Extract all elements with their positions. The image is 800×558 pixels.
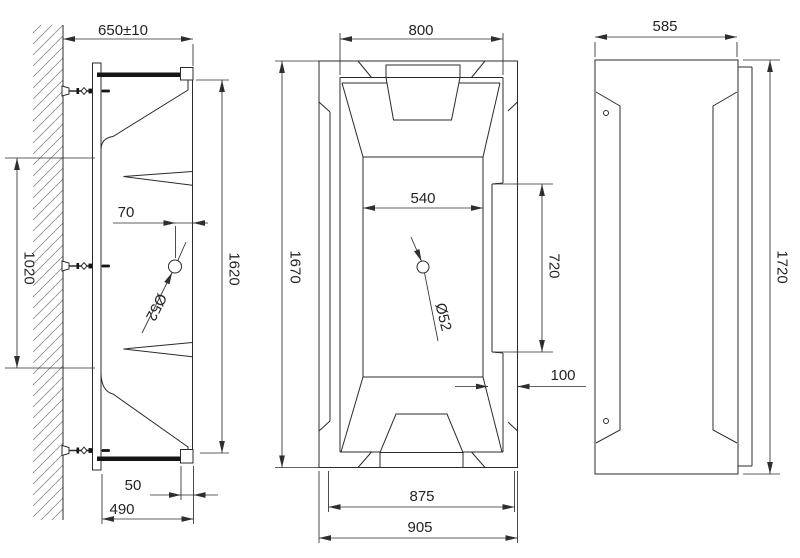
wall-fastener-bottom [62, 446, 110, 456]
dim-650-label: 650±10 [98, 22, 148, 39]
dim-1620: 1620 [196, 80, 243, 453]
foot-step-pad [380, 453, 463, 468]
headrest-pad [386, 65, 460, 78]
tub-inner-profile-top [101, 81, 188, 151]
side-section-view: 650±10 1020 70 Ø52 1620 [5, 22, 243, 524]
drawing-sheet: 650±10 1020 70 Ø52 1620 [0, 0, 800, 558]
end-view: 585 1720 [595, 18, 791, 474]
dim-875-label: 875 [409, 488, 434, 505]
dim-100-label: 100 [550, 367, 575, 384]
mounting-hole-bottom [604, 419, 609, 424]
headrest-slope [386, 78, 460, 121]
dim-540-label: 540 [410, 190, 435, 207]
tub-back-flange [93, 63, 102, 470]
plan-view: 800 1670 540 Ø52 720 100 [275, 22, 586, 543]
tub-bottom-bar [97, 457, 181, 462]
drain-hole-plan [417, 261, 429, 273]
dim-905-label: 905 [407, 519, 432, 536]
drain-diameter-side-label: Ø52 [142, 291, 170, 324]
dim-1720: 1720 [743, 60, 791, 474]
drain-hole-side [169, 260, 182, 273]
dim-585-label: 585 [652, 18, 677, 35]
dim-650: 650±10 [63, 22, 193, 66]
leader-drain-side: Ø52 [142, 242, 186, 333]
dim-1020-label: 1020 [21, 251, 38, 284]
dim-50: 50 [125, 466, 218, 524]
wall-fastener-top [62, 86, 110, 96]
tub-rim-end-block [181, 68, 194, 81]
dim-720-label: 720 [546, 253, 563, 278]
apron-panel-outline [595, 60, 738, 474]
dim-1720-label: 1720 [774, 250, 791, 283]
dim-490-label: 490 [109, 501, 134, 518]
dim-70: 70 [113, 204, 208, 258]
dim-875: 875 [329, 471, 515, 512]
dim-585: 585 [595, 18, 737, 57]
jet-wedge-top [124, 172, 193, 186]
dim-490: 490 [102, 474, 194, 524]
technical-drawing: 650±10 1020 70 Ø52 1620 [0, 0, 800, 558]
tub-bottom-end-block [181, 450, 194, 464]
dim-800-label: 800 [408, 22, 433, 39]
tub-top-rim-bar [97, 73, 181, 78]
tub-inner-profile-bottom [101, 372, 188, 450]
dim-1670-label: 1670 [287, 250, 304, 283]
dim-1620-label: 1620 [226, 252, 243, 285]
mounting-hole-top [604, 111, 609, 116]
jet-wedge-bottom [124, 343, 193, 357]
dim-70-label: 70 [118, 204, 135, 221]
dim-50-label: 50 [125, 477, 142, 494]
wall-fastener-middle [62, 261, 110, 271]
dim-1670: 1670 [275, 61, 319, 468]
